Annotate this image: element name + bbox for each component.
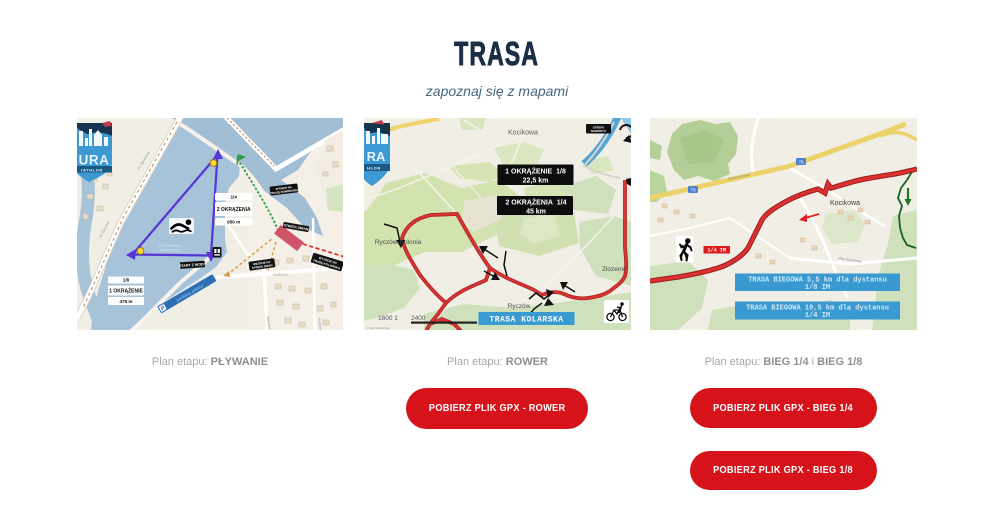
svg-text:Kocikowa: Kocikowa <box>508 130 538 137</box>
svg-text:STARTOWA: STARTOWA <box>160 248 181 252</box>
svg-text:1600 1: 1600 1 <box>378 315 398 322</box>
svg-text:1/4 IM: 1/4 IM <box>805 312 830 320</box>
svg-text:NAWROTU: NAWROTU <box>591 129 606 133</box>
svg-text:Kocikowa: Kocikowa <box>830 200 860 207</box>
svg-text:PLATFORMA: PLATFORMA <box>159 244 182 248</box>
svg-text:2 OKRĄŻENIA: 2 OKRĄŻENIA <box>217 206 251 213</box>
svg-text:2400: 2400 <box>411 315 426 322</box>
svg-text:79: 79 <box>798 159 804 164</box>
svg-text:Ryczów: Ryczów <box>508 303 531 310</box>
svg-text:© OpenStreetMap: © OpenStreetMap <box>366 326 391 330</box>
svg-text:45 km: 45 km <box>526 209 546 216</box>
svg-text:RA: RA <box>367 149 386 164</box>
svg-text:1/4: 1/4 <box>231 194 238 199</box>
svg-text:950 m: 950 m <box>227 219 240 224</box>
svg-text:URA: URA <box>79 153 110 168</box>
svg-text:HLON: HLON <box>367 165 381 170</box>
svg-text:Złożenie: Złożenie <box>602 266 627 273</box>
svg-text:TRASA KOLARSKA: TRASA KOLARSKA <box>489 316 563 325</box>
svg-text:1/8 IM: 1/8 IM <box>805 284 830 292</box>
svg-text:IATHLON: IATHLON <box>81 167 103 172</box>
svg-text:1/8: 1/8 <box>123 278 130 283</box>
svg-text:2 OKRĄŻENIA 1/4: 2 OKRĄŻENIA 1/4 <box>505 199 566 207</box>
svg-text:1 OKRĄŻENIE 1/8: 1 OKRĄŻENIE 1/8 <box>505 168 566 176</box>
svg-text:1/4 IM: 1/4 IM <box>707 248 726 254</box>
svg-text:79: 79 <box>690 187 696 192</box>
svg-text:1 OKRĄŻENIE: 1 OKRĄŻENIE <box>109 287 143 294</box>
svg-text:22,5 km: 22,5 km <box>523 178 549 185</box>
svg-text:Piaskowa: Piaskowa <box>273 272 288 277</box>
svg-text:475 m: 475 m <box>119 299 132 304</box>
svg-text:Ryczów-Kolonia: Ryczów-Kolonia <box>375 239 422 246</box>
